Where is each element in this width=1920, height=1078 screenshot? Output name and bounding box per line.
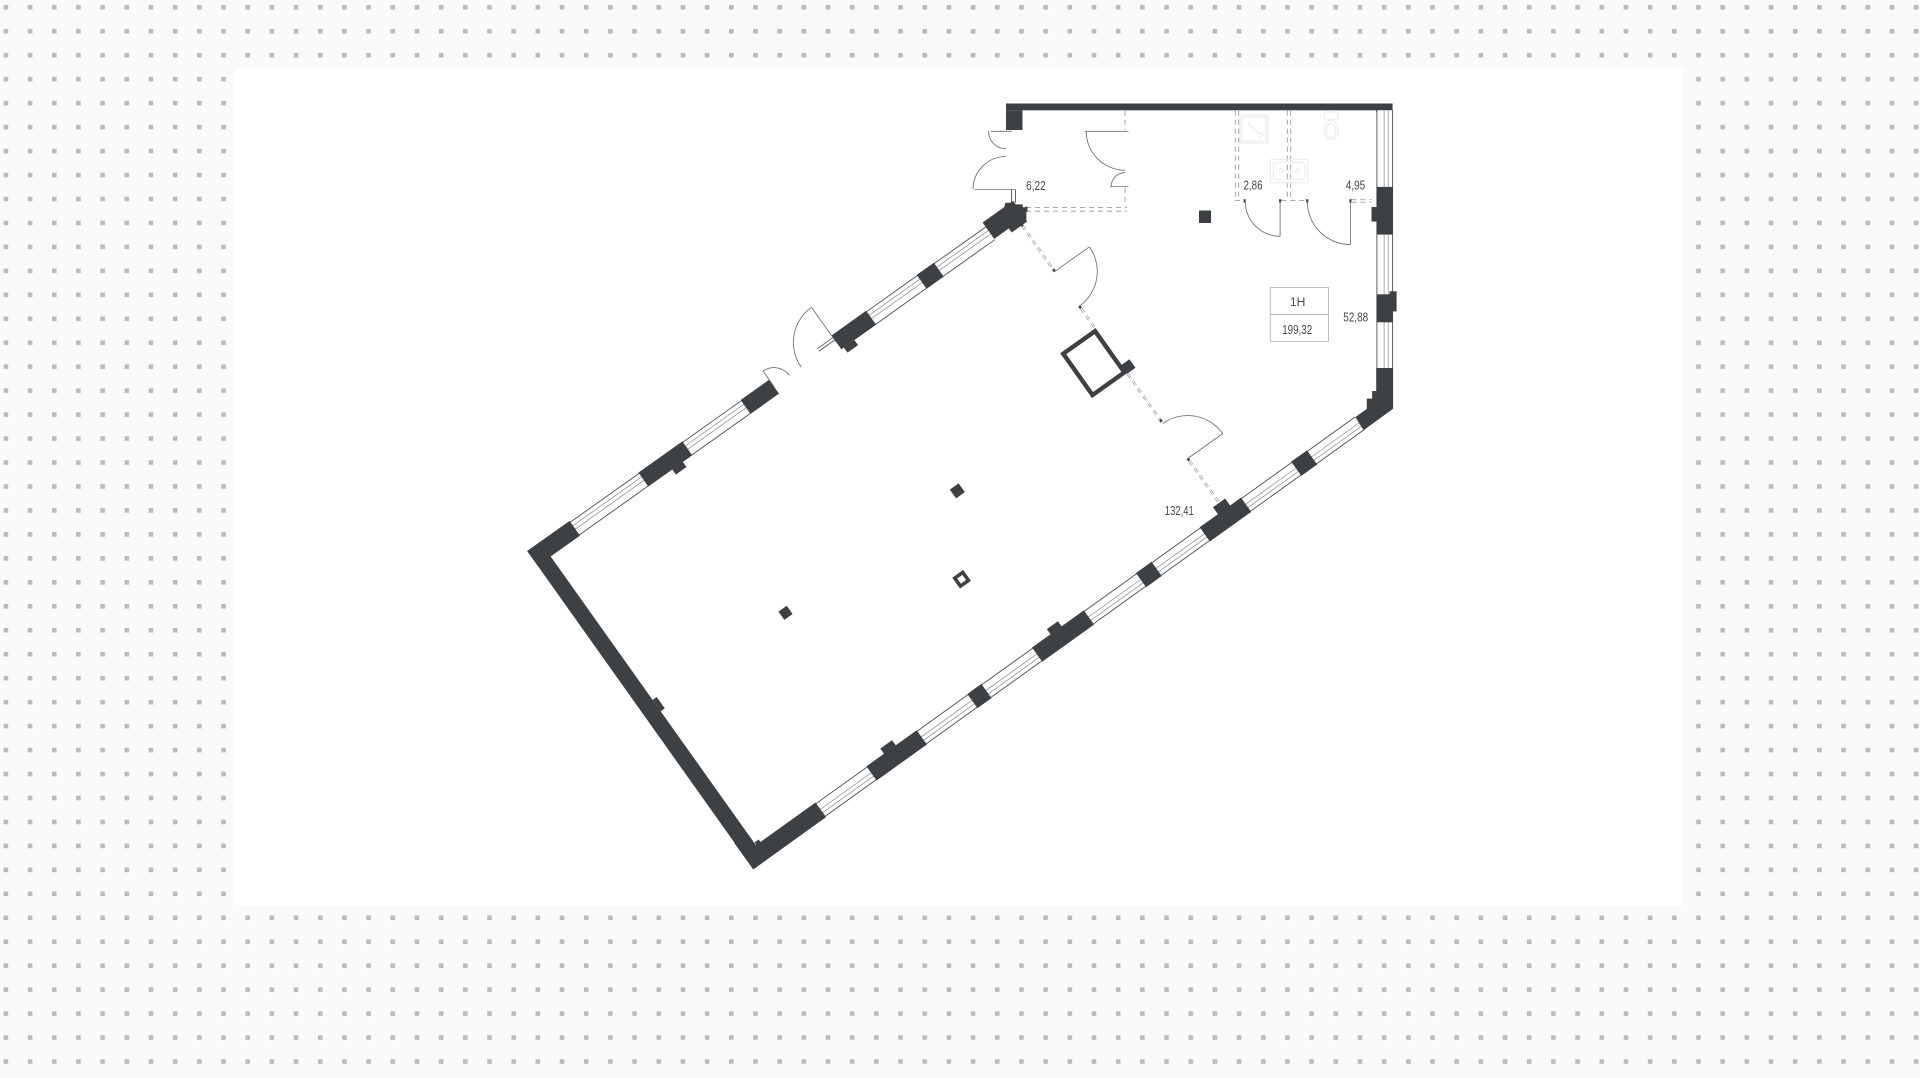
- svg-text:132,41: 132,41: [1165, 503, 1194, 518]
- svg-text:1H: 1H: [1290, 297, 1306, 309]
- svg-text:2,86: 2,86: [1244, 178, 1263, 193]
- svg-text:52,88: 52,88: [1343, 310, 1368, 325]
- svg-text:199,32: 199,32: [1282, 322, 1312, 337]
- svg-text:6,22: 6,22: [1026, 178, 1046, 193]
- svg-text:4,95: 4,95: [1346, 177, 1366, 192]
